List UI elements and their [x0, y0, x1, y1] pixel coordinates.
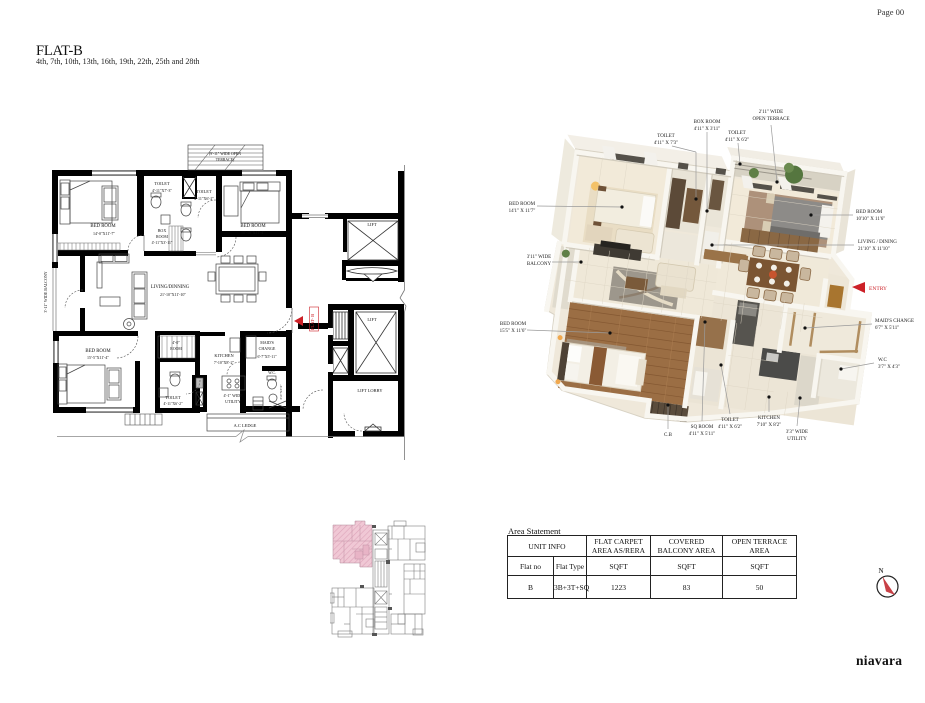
svg-text:BALCONY: BALCONY [527, 262, 552, 267]
svg-text:LIVING / DINING: LIVING / DINING [858, 240, 897, 245]
svg-text:4'11" X 5'11": 4'11" X 5'11" [689, 432, 716, 437]
svg-text:LIFT: LIFT [367, 317, 377, 322]
svg-text:15'-5"X11'-4": 15'-5"X11'-4" [87, 355, 109, 360]
svg-text:SQ ROOM: SQ ROOM [691, 425, 714, 430]
svg-text:MAID'S: MAID'S [260, 340, 274, 345]
svg-text:W.C.: W.C. [268, 371, 276, 375]
svg-text:4'11" X 6'2": 4'11" X 6'2" [718, 425, 742, 430]
svg-text:7'-10"X8'-2": 7'-10"X8'-2" [214, 360, 235, 365]
svg-text:CHANGE: CHANGE [259, 346, 276, 351]
svg-text:BED ROOM: BED ROOM [85, 349, 111, 354]
svg-text:10'10" X 11'6": 10'10" X 11'6" [856, 217, 885, 222]
svg-text:14'1" X 11'7": 14'1" X 11'7" [509, 209, 536, 214]
svg-text:4'-11"X6'-2": 4'-11"X6'-2" [163, 402, 183, 406]
svg-text:TOILET: TOILET [196, 189, 212, 194]
svg-text:14'-0"X11'-7": 14'-0"X11'-7" [93, 231, 115, 236]
svg-text:3'7" X 4'3": 3'7" X 4'3" [878, 365, 900, 370]
svg-text:MAID'S CHANGE: MAID'S CHANGE [875, 319, 914, 324]
svg-text:10'-10"X11'-4": 10'-10"X11'-4" [241, 230, 265, 235]
svg-text:4'-11"X7'-3": 4'-11"X7'-3" [152, 188, 172, 193]
svg-text:LIFT LOBBY: LIFT LOBBY [357, 388, 383, 393]
svg-text:3'11" WIDE: 3'11" WIDE [527, 255, 551, 260]
svg-text:LIFT: LIFT [367, 222, 377, 227]
svg-text:BED ROOM: BED ROOM [240, 224, 266, 229]
svg-text:15'5" X 11'6": 15'5" X 11'6" [500, 329, 527, 334]
svg-text:UTILITY: UTILITY [787, 437, 807, 442]
svg-text:3'3" WIDE: 3'3" WIDE [786, 430, 808, 435]
svg-text:3'-11" WIDE BALCONY: 3'-11" WIDE BALCONY [43, 271, 48, 312]
svg-text:A.C LEDGE: A.C LEDGE [234, 423, 257, 428]
svg-text:BED ROOM: BED ROOM [500, 322, 527, 327]
svg-text:C.B: C.B [664, 433, 673, 438]
svg-text:4'11" X 6'2": 4'11" X 6'2" [725, 138, 749, 143]
svg-text:KITCHEN: KITCHEN [758, 416, 780, 421]
svg-text:BED ROOM: BED ROOM [509, 202, 536, 207]
svg-text:4'11" X 3'11": 4'11" X 3'11" [694, 127, 721, 132]
svg-text:21'-10"X11'-10": 21'-10"X11'-10" [160, 292, 186, 297]
svg-text:UTILITY: UTILITY [225, 399, 241, 404]
svg-text:KITCHEN: KITCHEN [214, 353, 234, 358]
svg-text:(9'-11" WIDE OPEN: (9'-11" WIDE OPEN [209, 152, 241, 156]
svg-text:OPEN TERRACE: OPEN TERRACE [753, 117, 790, 122]
svg-text:4'-1" WIDE: 4'-1" WIDE [223, 393, 243, 398]
svg-text:7'10" X 8'2": 7'10" X 8'2" [757, 423, 782, 428]
svg-text:4'-11"X3'-11": 4'-11"X3'-11" [152, 241, 173, 245]
svg-text:4'-0": 4'-0" [172, 340, 180, 345]
svg-text:ROOM: ROOM [170, 347, 182, 351]
svg-text:6'-7"X5'-11": 6'-7"X5'-11" [257, 355, 277, 359]
svg-text:4'11" X 7'3": 4'11" X 7'3" [654, 141, 678, 146]
svg-text:TOILET: TOILET [721, 418, 738, 423]
svg-text:BED ROOM: BED ROOM [856, 210, 883, 215]
svg-text:TOILET: TOILET [728, 131, 745, 136]
svg-text:TERRACE): TERRACE) [216, 158, 235, 162]
svg-text:W.C: W.C [878, 358, 888, 363]
svg-text:LIVING/DINNING: LIVING/DINNING [151, 285, 190, 290]
svg-text:ENTRY: ENTRY [869, 286, 887, 292]
svg-text:2'11" WIDE: 2'11" WIDE [759, 110, 783, 115]
svg-text:21'10" X 11'10": 21'10" X 11'10" [858, 247, 890, 252]
svg-text:FLAT- B: FLAT- B [310, 314, 315, 330]
svg-text:N: N [879, 567, 884, 575]
svg-text:BOX ROOM: BOX ROOM [694, 120, 721, 125]
svg-text:BED ROOM: BED ROOM [90, 224, 116, 229]
svg-text:3'-0"X3'-9": 3'-0"X3'-9" [279, 384, 283, 400]
svg-text:6'7" X 5'11": 6'7" X 5'11" [875, 326, 899, 331]
svg-text:TOILET: TOILET [165, 395, 181, 400]
svg-text:TOILET: TOILET [657, 134, 674, 139]
svg-text:4'-11"X6'-2": 4'-11"X6'-2" [194, 196, 214, 201]
svg-text:TOILET: TOILET [154, 181, 170, 186]
svg-text:BOX: BOX [158, 228, 167, 233]
svg-text:ROOM: ROOM [156, 234, 168, 239]
